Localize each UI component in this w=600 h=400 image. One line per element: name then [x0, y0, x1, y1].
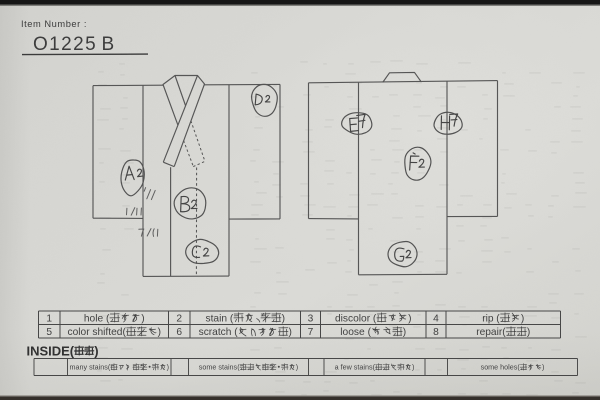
svg-text:): )	[94, 343, 98, 358]
svg-text:): )	[167, 363, 169, 372]
svg-text:discolor: discolor	[335, 313, 371, 324]
svg-text:2: 2	[176, 313, 182, 324]
svg-text:some holes: some holes	[481, 363, 518, 372]
svg-text:(: (	[368, 327, 372, 338]
svg-text:): )	[412, 363, 414, 372]
svg-text:3: 3	[308, 313, 314, 324]
svg-text:hole: hole	[84, 313, 104, 324]
svg-text:many stains: many stains	[70, 363, 109, 372]
svg-text:(: (	[373, 313, 377, 324]
svg-text:(: (	[230, 313, 234, 324]
svg-text:O1225: O1225	[33, 34, 97, 55]
svg-text:stain: stain	[206, 313, 228, 324]
svg-text:4: 4	[433, 313, 439, 324]
svg-text:(: (	[496, 313, 500, 324]
svg-text:): )	[408, 313, 411, 324]
svg-text:): )	[521, 313, 524, 324]
svg-text:B: B	[102, 34, 115, 55]
svg-text:(: (	[70, 343, 75, 358]
svg-text:7: 7	[308, 327, 314, 338]
svg-text:): )	[141, 313, 144, 324]
svg-text:loose: loose	[340, 327, 365, 338]
svg-text:): )	[542, 363, 544, 372]
svg-text:INSIDE: INSIDE	[27, 343, 71, 358]
svg-text:): )	[282, 313, 285, 324]
svg-text:Item Number :: Item Number :	[21, 19, 87, 29]
svg-text:rip: rip	[482, 313, 494, 324]
svg-text:color shifted: color shifted	[68, 327, 123, 338]
svg-text:1: 1	[46, 313, 52, 324]
svg-text:5: 5	[46, 327, 52, 338]
svg-text:8: 8	[433, 327, 439, 338]
svg-text:a few stains: a few stains	[335, 363, 373, 372]
svg-text:(: (	[123, 327, 127, 338]
svg-text:): )	[527, 327, 530, 338]
svg-text:some stains: some stains	[199, 363, 238, 372]
svg-text:): )	[296, 363, 298, 372]
svg-text:(: (	[234, 327, 238, 338]
svg-text:scratch: scratch	[199, 327, 232, 338]
svg-text:(: (	[106, 313, 110, 324]
svg-text:): )	[289, 327, 292, 338]
svg-text:(: (	[502, 327, 506, 338]
svg-text:): )	[403, 327, 406, 338]
svg-text:repair: repair	[476, 327, 503, 338]
svg-text:): )	[158, 327, 161, 338]
svg-text:6: 6	[176, 327, 182, 338]
